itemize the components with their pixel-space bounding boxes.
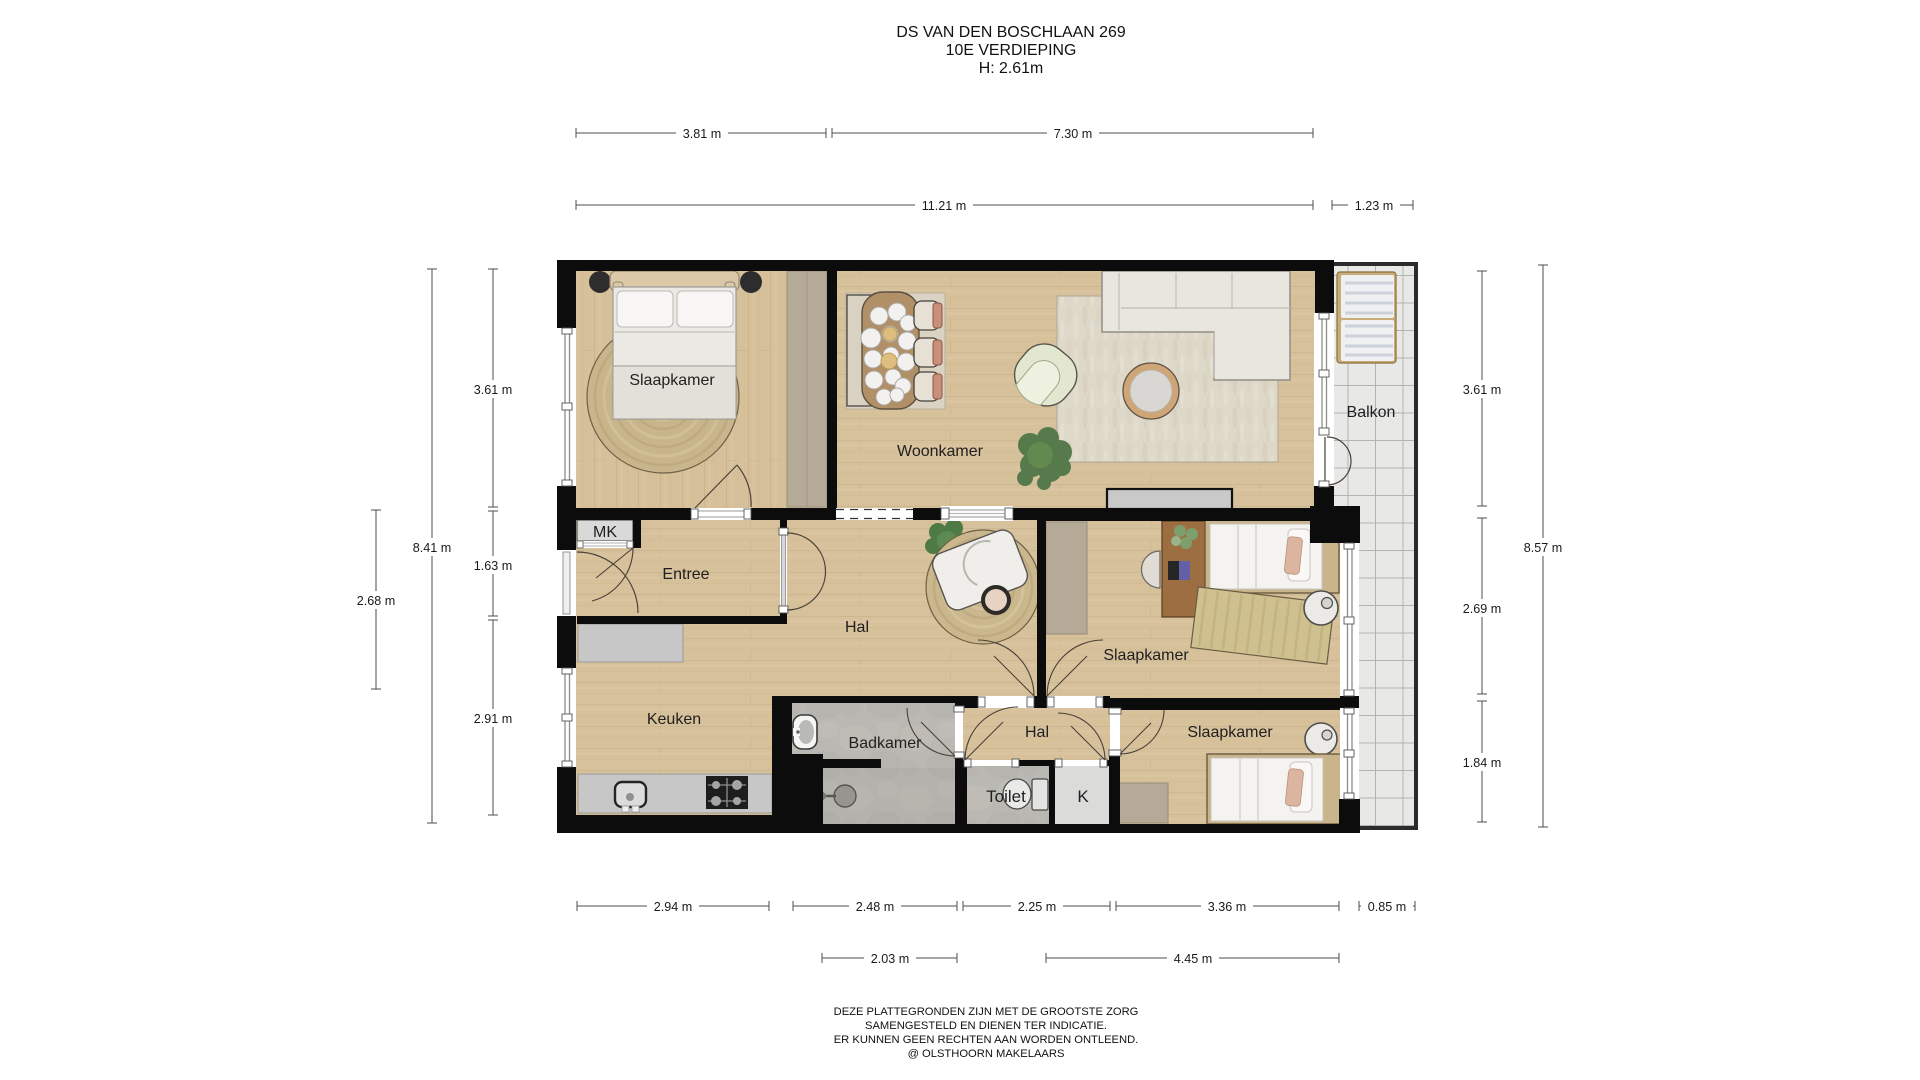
svg-text:DS VAN DEN BOSCHLAAN 269: DS VAN DEN BOSCHLAAN 269: [896, 24, 1125, 41]
svg-text:Balkon: Balkon: [1347, 404, 1396, 421]
svg-text:2.25 m: 2.25 m: [1018, 900, 1057, 914]
svg-text:2.94 m: 2.94 m: [654, 900, 693, 914]
svg-text:11.21 m: 11.21 m: [922, 199, 967, 213]
svg-text:SAMENGESTELD EN DIENEN TER IND: SAMENGESTELD EN DIENEN TER INDICATIE.: [865, 1020, 1107, 1032]
svg-text:Keuken: Keuken: [647, 711, 701, 728]
svg-text:8.57 m: 8.57 m: [1524, 541, 1563, 555]
svg-text:7.30 m: 7.30 m: [1054, 127, 1093, 141]
svg-text:Toilet: Toilet: [986, 787, 1026, 806]
svg-text:Entree: Entree: [662, 566, 709, 583]
svg-text:H: 2.61m: H: 2.61m: [979, 60, 1043, 77]
svg-text:Slaapkamer: Slaapkamer: [1103, 647, 1189, 664]
svg-text:4.45 m: 4.45 m: [1174, 952, 1213, 966]
svg-text:2.91 m: 2.91 m: [474, 712, 513, 726]
svg-text:3.36 m: 3.36 m: [1208, 900, 1247, 914]
svg-text:ER KUNNEN GEEN RECHTEN AAN WOR: ER KUNNEN GEEN RECHTEN AAN WORDEN ONTLEE…: [834, 1034, 1139, 1046]
svg-text:3.61 m: 3.61 m: [1463, 383, 1502, 397]
svg-text:Slaapkamer: Slaapkamer: [1187, 724, 1273, 741]
svg-text:2.68 m: 2.68 m: [357, 594, 396, 608]
svg-text:2.69 m: 2.69 m: [1463, 602, 1502, 616]
svg-text:1.84 m: 1.84 m: [1463, 756, 1502, 770]
svg-text:DEZE PLATTEGRONDEN ZIJN MET DE: DEZE PLATTEGRONDEN ZIJN MET DE GROOTSTE …: [834, 1006, 1139, 1018]
svg-text:Woonkamer: Woonkamer: [897, 443, 984, 460]
svg-text:1.23 m: 1.23 m: [1355, 199, 1394, 213]
svg-text:8.41 m: 8.41 m: [413, 541, 452, 555]
svg-text:10E VERDIEPING: 10E VERDIEPING: [946, 42, 1077, 59]
svg-text:@ OLSTHOORN MAKELAARS: @ OLSTHOORN MAKELAARS: [908, 1048, 1065, 1060]
svg-text:3.81 m: 3.81 m: [683, 127, 722, 141]
svg-text:Hal: Hal: [1025, 724, 1049, 741]
svg-text:1.63 m: 1.63 m: [474, 559, 513, 573]
svg-text:3.61 m: 3.61 m: [474, 383, 513, 397]
svg-text:2.48 m: 2.48 m: [856, 900, 895, 914]
svg-text:2.03 m: 2.03 m: [871, 952, 910, 966]
svg-text:0.85 m: 0.85 m: [1368, 900, 1407, 914]
svg-text:MK: MK: [593, 524, 617, 541]
svg-text:Slaapkamer: Slaapkamer: [629, 372, 715, 389]
svg-text:K: K: [1077, 787, 1089, 806]
svg-text:Badkamer: Badkamer: [849, 735, 923, 752]
svg-text:Hal: Hal: [845, 619, 869, 636]
